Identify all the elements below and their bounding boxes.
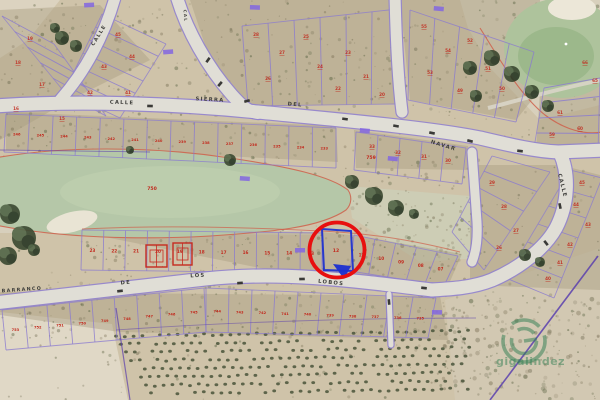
svg-text:07: 07 (438, 267, 444, 272)
svg-text:60: 60 (577, 126, 583, 131)
svg-text:27: 27 (513, 228, 519, 233)
street-label: CALLE (110, 100, 135, 107)
svg-text:61: 61 (557, 110, 563, 115)
svg-text:16: 16 (13, 106, 19, 111)
svg-text:42: 42 (567, 242, 573, 247)
svg-text:22: 22 (335, 86, 341, 91)
svg-text:29: 29 (489, 180, 495, 185)
svg-text:759: 759 (366, 155, 376, 161)
svg-text:19: 19 (177, 249, 183, 254)
svg-text:23: 23 (345, 50, 351, 55)
svg-text:45: 45 (579, 180, 585, 185)
watermark-text: gigalindez (496, 355, 565, 368)
svg-text:08: 08 (418, 263, 424, 268)
svg-text:739: 739 (326, 314, 334, 318)
svg-text:746: 746 (168, 313, 176, 317)
svg-text:747: 747 (146, 315, 154, 319)
svg-text:40: 40 (545, 276, 551, 281)
svg-text:41: 41 (125, 90, 131, 95)
svg-text:242: 242 (108, 137, 116, 141)
svg-text:22: 22 (111, 248, 117, 253)
svg-text:33: 33 (369, 144, 375, 149)
svg-text:31: 31 (421, 154, 427, 159)
svg-text:53: 53 (427, 70, 433, 75)
svg-text:16: 16 (243, 250, 249, 255)
svg-text:15: 15 (59, 116, 65, 121)
svg-text:753: 753 (12, 328, 20, 332)
svg-text:742: 742 (259, 311, 267, 315)
svg-text:28: 28 (253, 32, 259, 37)
svg-text:15: 15 (264, 250, 270, 255)
svg-text:14: 14 (286, 251, 292, 256)
svg-text:27: 27 (279, 50, 285, 55)
svg-text:26: 26 (265, 76, 271, 81)
svg-text:54: 54 (445, 48, 451, 53)
svg-text:65: 65 (592, 78, 598, 83)
street-label: DE (120, 279, 131, 286)
svg-text:752: 752 (34, 326, 42, 330)
svg-text:42: 42 (87, 90, 93, 95)
svg-text:24: 24 (317, 64, 323, 69)
svg-text:740: 740 (304, 313, 312, 317)
svg-text:743: 743 (236, 310, 244, 314)
svg-text:44: 44 (129, 54, 135, 59)
svg-text:20: 20 (379, 92, 385, 97)
svg-text:751: 751 (56, 324, 64, 328)
svg-text:237: 237 (226, 142, 234, 146)
svg-text:59: 59 (549, 132, 555, 137)
svg-text:45: 45 (115, 32, 121, 37)
svg-text:18: 18 (199, 250, 205, 255)
svg-text:25: 25 (303, 34, 309, 39)
svg-text:735: 735 (417, 317, 425, 321)
svg-text:41: 41 (557, 260, 563, 265)
svg-text:236: 236 (249, 143, 257, 147)
svg-text:241: 241 (131, 138, 139, 142)
svg-text:744: 744 (214, 310, 222, 314)
svg-text:233: 233 (320, 147, 328, 151)
svg-text:52: 52 (467, 38, 473, 43)
svg-text:55: 55 (421, 24, 427, 29)
svg-text:09: 09 (398, 260, 404, 265)
svg-text:235: 235 (273, 144, 281, 148)
svg-text:21: 21 (133, 249, 139, 254)
svg-text:51: 51 (485, 66, 491, 71)
svg-text:750: 750 (147, 186, 157, 192)
svg-text:737: 737 (371, 315, 379, 319)
svg-text:738: 738 (349, 314, 357, 318)
svg-text:28: 28 (501, 204, 507, 209)
svg-text:43: 43 (101, 64, 107, 69)
svg-text:32: 32 (395, 150, 401, 155)
svg-text:748: 748 (123, 317, 131, 321)
svg-text:243: 243 (84, 136, 92, 140)
svg-text:26: 26 (496, 245, 502, 250)
svg-text:238: 238 (202, 141, 210, 145)
svg-text:240: 240 (155, 139, 163, 143)
svg-text:44: 44 (573, 202, 579, 207)
svg-text:749: 749 (101, 319, 109, 323)
svg-text:750: 750 (79, 321, 87, 325)
svg-text:30: 30 (445, 158, 451, 163)
svg-text:17: 17 (39, 82, 45, 87)
svg-text:18: 18 (15, 60, 21, 65)
svg-text:10: 10 (378, 256, 384, 261)
svg-text:21: 21 (363, 74, 369, 79)
street-label: LOS (190, 273, 205, 280)
highlighted-parcel-number: 12 (333, 248, 339, 254)
svg-text:43: 43 (585, 222, 591, 227)
svg-text:49: 49 (457, 88, 463, 93)
svg-text:19: 19 (27, 36, 33, 41)
svg-text:745: 745 (190, 310, 198, 314)
svg-text:23: 23 (89, 248, 95, 253)
svg-text:50: 50 (499, 86, 505, 91)
map-canvas: 2462452442432422412402392382372362352342… (0, 0, 600, 400)
svg-text:245: 245 (37, 134, 45, 138)
svg-text:244: 244 (60, 135, 68, 139)
aerial-map-image: 2462452442432422412402392382372362352342… (0, 0, 600, 400)
svg-text:17: 17 (221, 250, 227, 255)
svg-text:239: 239 (179, 140, 187, 144)
svg-text:736: 736 (394, 316, 402, 320)
svg-text:234: 234 (297, 145, 305, 149)
svg-text:66: 66 (582, 60, 588, 65)
svg-text:246: 246 (13, 132, 21, 136)
svg-text:741: 741 (281, 312, 289, 316)
